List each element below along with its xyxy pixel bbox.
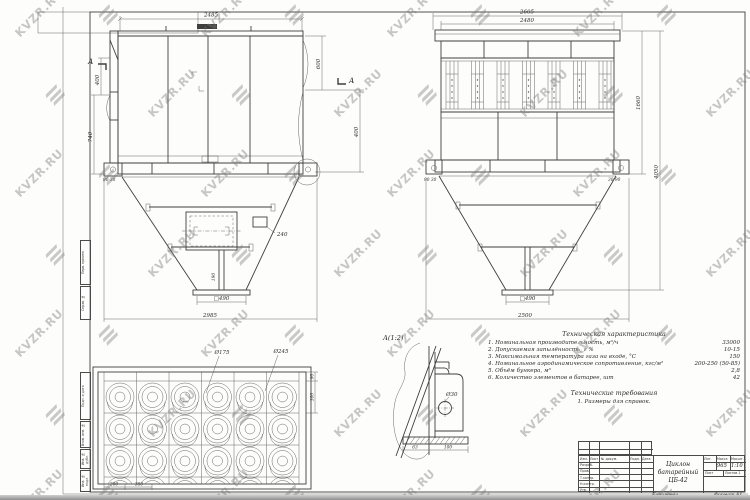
dim-front-right-outer: 400 xyxy=(354,126,360,138)
col-sign: Подп. xyxy=(630,457,640,461)
revision-table xyxy=(578,441,652,455)
side-view: 2605 2480 xyxy=(424,10,664,323)
dim-front-left-lower: 740 xyxy=(88,131,94,142)
dim-front-center-post: 190 xyxy=(212,273,217,281)
item-value: 2,8 xyxy=(731,368,740,375)
item-value: 200-250 (50-85) xyxy=(694,361,740,368)
title-block: Изм. Лист № докум. Подп. Дата Разраб. Пр… xyxy=(578,441,745,492)
front-view: 2485 А xyxy=(87,13,364,323)
col-date: Дата xyxy=(642,457,651,461)
scanned-drawing-sheet: 2485 А xyxy=(0,0,750,500)
lit-header: Лит. xyxy=(704,457,712,461)
dim-plan-right-a: 90 xyxy=(311,374,316,380)
scale-value: 1:10 xyxy=(731,463,743,469)
edge-stamp-sprav: Справ. № xyxy=(80,286,91,320)
item-value: 42 xyxy=(733,375,740,382)
drawing-linework: 2485 А xyxy=(0,0,750,500)
row-prov: Пров. xyxy=(580,469,590,473)
section-letter: А xyxy=(348,77,354,85)
row-razrab: Разраб. xyxy=(580,463,593,467)
dim-side-right-total: 4050 xyxy=(654,165,660,180)
doc-name-line1: Циклон xyxy=(653,461,703,468)
dim-front-right-upper: 600 xyxy=(316,58,322,69)
dim-side-top-outer: 2605 xyxy=(519,10,534,16)
sheets-label: Листов 1 xyxy=(725,471,740,475)
row-tkontr: Т.контр. xyxy=(580,476,594,480)
tech-reqs-title: Технические требования xyxy=(488,389,740,397)
dim-side-bottom-width: 2500 xyxy=(517,313,532,319)
dim-detail-a: 63 xyxy=(412,446,418,451)
item-text: 2. Допускаемая запылённость, г % xyxy=(488,347,594,354)
dim-front-outlet: □490 xyxy=(214,296,230,302)
dim-front-top-width: 2485 xyxy=(203,13,218,19)
section-marker-right: А xyxy=(338,77,354,85)
lifting-lug xyxy=(197,24,217,29)
edge-stamp-podp-data: Подп. и дата xyxy=(80,372,91,420)
row-utv: Утв. xyxy=(580,488,587,492)
dim-plan-outer-dia: Ø245 xyxy=(272,348,289,355)
item-value: 10-15 xyxy=(724,347,740,354)
dim-detail-hole: Ø30 xyxy=(445,391,458,398)
dim-plan-pitch-b: 380 xyxy=(135,483,143,488)
detail-view: А(1:2) Ø30 xyxy=(382,334,468,459)
section-letter: А xyxy=(87,58,93,66)
louver-slats xyxy=(446,61,611,109)
scan-edge-shadow xyxy=(0,495,750,500)
doc-name-line3: ЦБ-42 xyxy=(653,477,703,484)
technical-characteristics: Техническая характеристика 1. Номинальна… xyxy=(488,330,740,405)
row-nkontr: Н.контр. xyxy=(580,482,595,486)
col-doc: № докум. xyxy=(601,457,617,461)
dim-side-outlet: □490 xyxy=(520,296,536,302)
detail-label: А(1:2) xyxy=(382,334,404,342)
corner-stamp-box xyxy=(38,12,198,33)
tech-chars-item: 6. Количество элементов в батарее, шт 42 xyxy=(488,375,740,382)
mass-header: Масса xyxy=(717,457,728,461)
col-izm: Изм. xyxy=(580,457,588,461)
doc-name-line2: батарейный xyxy=(653,469,703,476)
scale-header: Масшт. xyxy=(731,457,744,461)
dim-plan-pitch-a: 200 xyxy=(109,483,118,488)
dim-front-foot: 90 30 xyxy=(103,178,116,183)
tech-reqs-item: 1. Размеры для справок. xyxy=(488,399,740,405)
edge-stamp-vzam-inv: Взам. инв. № xyxy=(80,421,91,448)
edge-stamp-perv-primen: Перв. примен. xyxy=(80,240,91,285)
dim-plan-inner-dia: Ø175 xyxy=(213,349,230,356)
main-stamp: Изм. Лист № докум. Подп. Дата Разраб. Пр… xyxy=(578,455,745,492)
edge-stamp-inv-podl: Инв. № подл. xyxy=(80,470,91,492)
dim-plan-right-b: 300 xyxy=(311,393,316,401)
edge-stamp-inv-dubl: Инв. № дубл. xyxy=(80,449,91,469)
sheet-label: Лист xyxy=(705,471,713,475)
item-value: 33000 xyxy=(722,340,740,347)
tech-chars-item: 2. Допускаемая запылённость, г % 10-15 xyxy=(488,347,740,354)
dim-detail-b: 100 xyxy=(444,446,452,451)
tech-chars-title: Техническая характеристика xyxy=(488,330,740,338)
item-text: 6. Количество элементов в батарее, шт xyxy=(488,375,614,382)
dim-side-right-body: 1660 xyxy=(636,96,642,110)
sheet-frame xyxy=(38,7,748,494)
dim-front-hatch-leader: 240 xyxy=(276,232,288,238)
dim-side-top-inner: 2480 xyxy=(519,18,534,24)
col-list: Лист xyxy=(590,457,598,461)
mass-value: 965 xyxy=(717,463,727,469)
dim-front-bottom-width: 2985 xyxy=(202,313,217,319)
plan-view: Ø175 Ø245 200 380 90 300 xyxy=(93,348,318,500)
dim-front-left-upper: 400 xyxy=(95,74,101,86)
